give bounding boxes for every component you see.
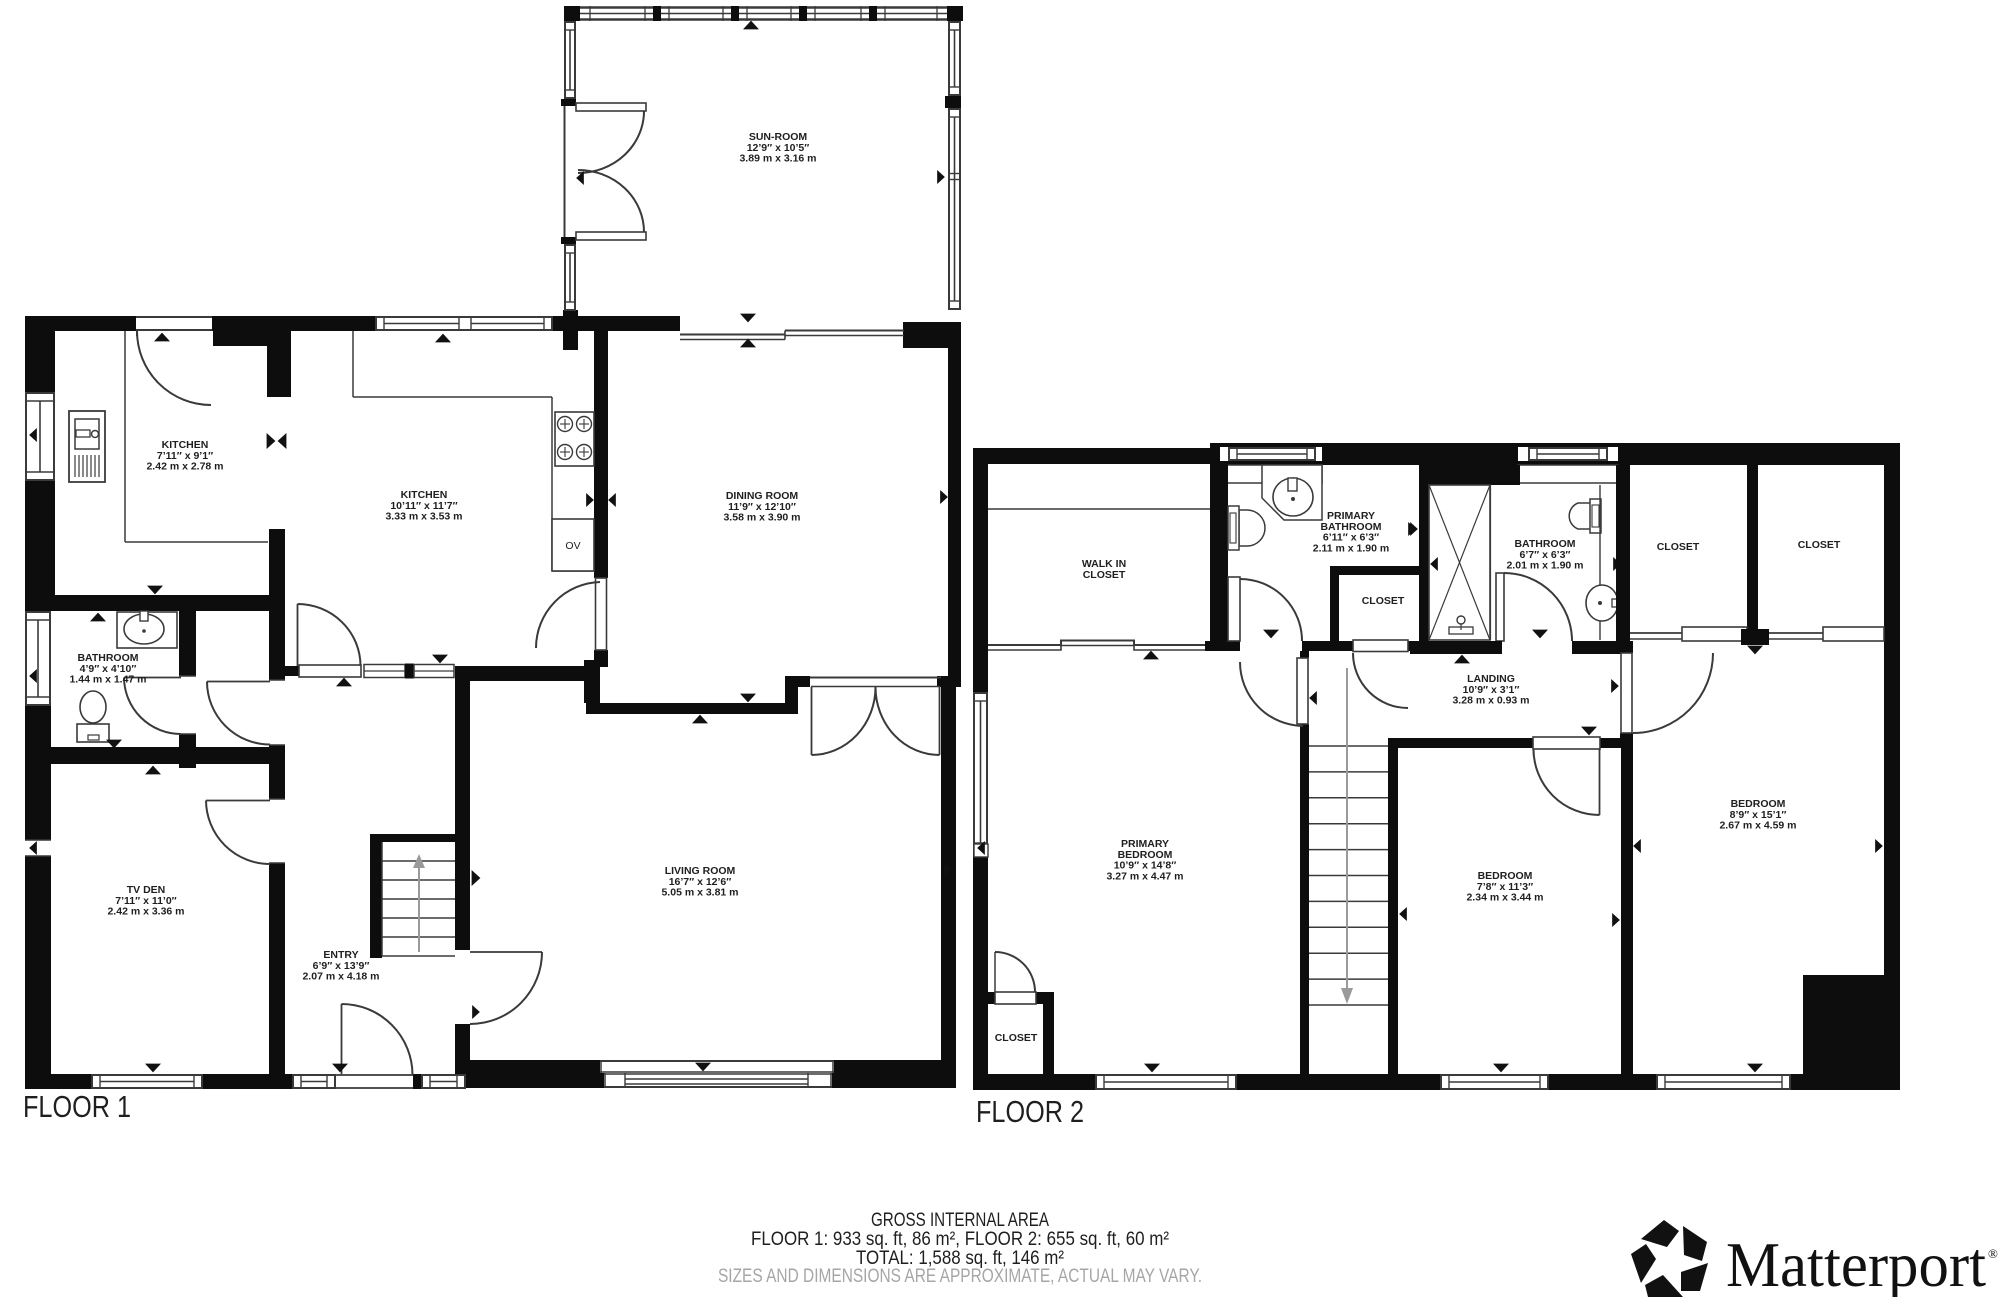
svg-text:GROSS INTERNAL AREA: GROSS INTERNAL AREA: [871, 1210, 1049, 1231]
svg-text:OV: OV: [565, 540, 580, 552]
svg-text:3.89 m x 3.16 m: 3.89 m x 3.16 m: [739, 153, 816, 165]
svg-text:FLOOR 1: FLOOR 1: [23, 1089, 131, 1124]
svg-text:2.42 m x 3.36 m: 2.42 m x 3.36 m: [107, 906, 184, 918]
svg-text:CLOSET: CLOSET: [1362, 595, 1405, 607]
svg-text:CLOSET: CLOSET: [1657, 541, 1700, 553]
svg-text:CLOSET: CLOSET: [1798, 539, 1841, 551]
svg-text:1.44 m x 1.47 m: 1.44 m x 1.47 m: [69, 674, 146, 686]
svg-text:CLOSET: CLOSET: [1083, 569, 1126, 581]
svg-text:3.28 m x 0.93 m: 3.28 m x 0.93 m: [1452, 695, 1529, 707]
svg-text:5.05 m x 3.81 m: 5.05 m x 3.81 m: [661, 887, 738, 899]
svg-text:2.67 m x 4.59 m: 2.67 m x 4.59 m: [1719, 820, 1796, 832]
svg-text:3.27 m x 4.47 m: 3.27 m x 4.47 m: [1106, 870, 1183, 882]
svg-text:FLOOR 2: FLOOR 2: [976, 1094, 1084, 1129]
svg-text:SIZES AND DIMENSIONS ARE APPRO: SIZES AND DIMENSIONS ARE APPROXIMATE, AC…: [718, 1266, 1202, 1287]
svg-text:3.58 m x 3.90 m: 3.58 m x 3.90 m: [723, 512, 800, 524]
svg-text:2.34 m x 3.44 m: 2.34 m x 3.44 m: [1466, 892, 1543, 904]
svg-text:2.11 m x 1.90 m: 2.11 m x 1.90 m: [1313, 542, 1389, 554]
svg-text:2.01 m x 1.90 m: 2.01 m x 1.90 m: [1506, 560, 1583, 572]
svg-text:®: ®: [1988, 1246, 1998, 1261]
svg-text:3.33 m x 3.53 m: 3.33 m x 3.53 m: [385, 511, 462, 523]
svg-text:2.07 m x 4.18 m: 2.07 m x 4.18 m: [302, 971, 379, 983]
svg-text:FLOOR 1: 933 sq. ft, 86 m², FL: FLOOR 1: 933 sq. ft, 86 m², FLOOR 2: 655…: [751, 1229, 1169, 1250]
svg-text:2.42 m x 2.78 m: 2.42 m x 2.78 m: [146, 461, 223, 473]
svg-text:Matterport: Matterport: [1726, 1229, 1986, 1297]
svg-text:CLOSET: CLOSET: [995, 1032, 1038, 1044]
